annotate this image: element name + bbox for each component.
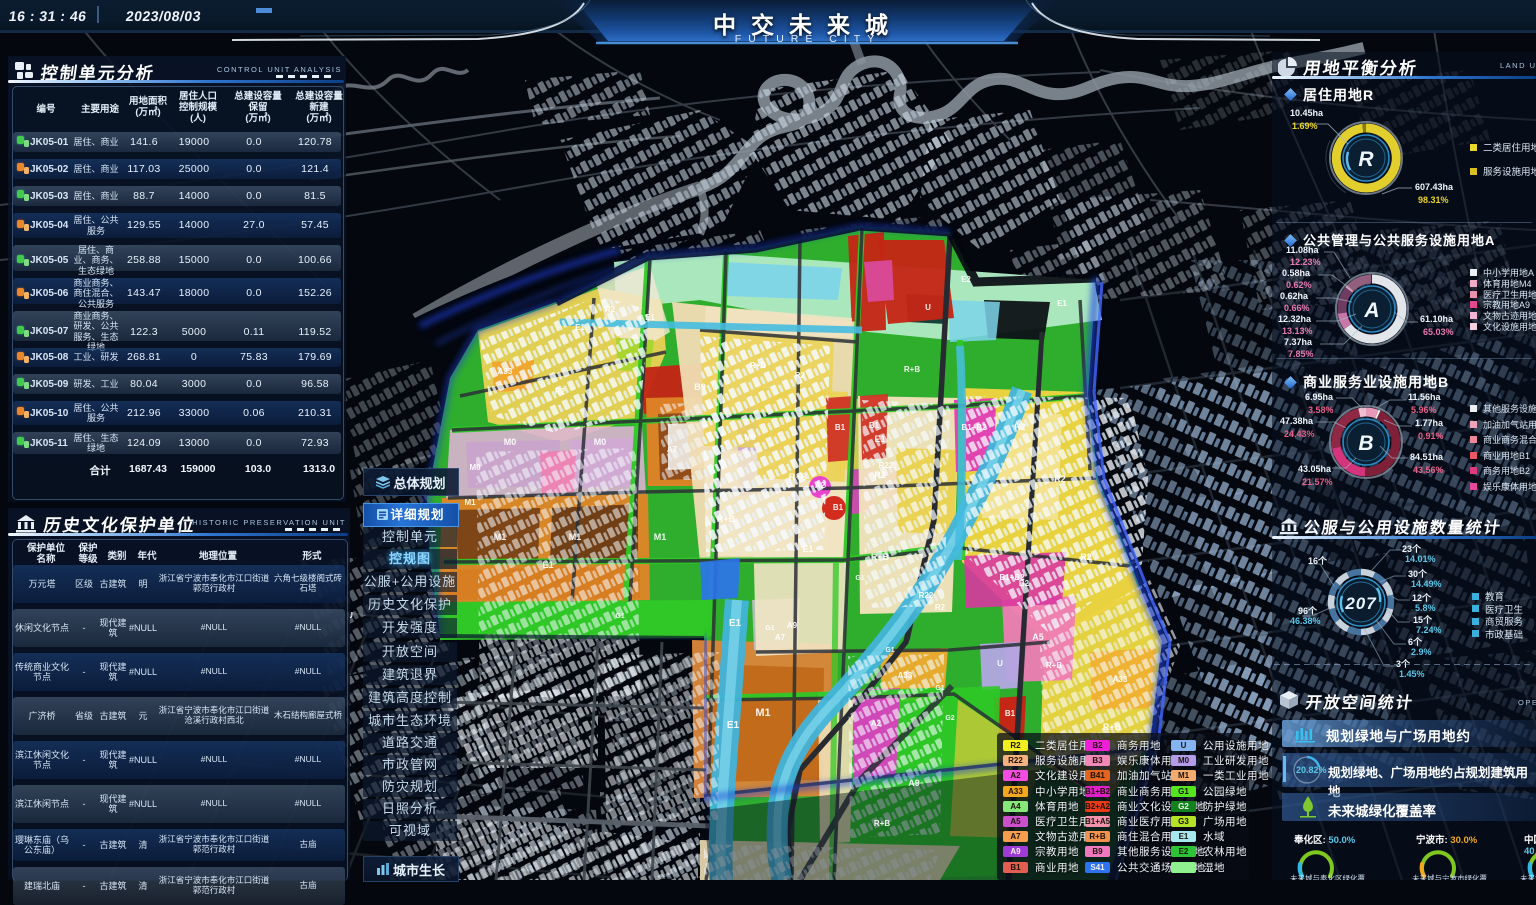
svg-text:M1: M1 — [464, 498, 476, 507]
svg-text:M1: M1 — [569, 532, 582, 542]
svg-text:M1: M1 — [654, 532, 667, 542]
svg-text:G1: G1 — [615, 613, 624, 620]
svg-text:E1: E1 — [729, 618, 742, 629]
svg-text:R+B: R+B — [904, 365, 920, 374]
svg-text:B1+B2: B1+B2 — [961, 423, 987, 432]
svg-text:R2: R2 — [1080, 552, 1092, 562]
svg-text:G2: G2 — [945, 715, 954, 722]
svg-text:E1: E1 — [1057, 299, 1067, 308]
svg-text:R2: R2 — [1054, 474, 1066, 484]
svg-text:A2: A2 — [815, 481, 826, 490]
svg-text:R2: R2 — [795, 371, 806, 380]
svg-text:B1: B1 — [833, 503, 844, 512]
svg-text:R22: R22 — [879, 461, 894, 470]
svg-text:R2: R2 — [605, 305, 616, 314]
svg-text:E2: E2 — [961, 275, 971, 284]
svg-text:R22: R22 — [919, 591, 934, 600]
svg-text:U: U — [997, 659, 1003, 668]
svg-text:A7: A7 — [775, 633, 786, 642]
svg-text:A2: A2 — [871, 719, 882, 728]
svg-text:R2: R2 — [555, 387, 566, 396]
svg-text:R+B: R+B — [717, 514, 736, 524]
svg-text:R+B: R+B — [1103, 722, 1122, 732]
svg-text:B1: B1 — [1005, 709, 1016, 718]
svg-text:A33: A33 — [1113, 675, 1128, 684]
svg-text:G1: G1 — [855, 575, 864, 582]
svg-text:M0: M0 — [504, 437, 517, 447]
svg-text:M1: M1 — [494, 532, 507, 542]
svg-text:M0: M0 — [744, 433, 756, 442]
svg-text:R2: R2 — [935, 603, 946, 612]
svg-text:A5: A5 — [1032, 632, 1044, 642]
svg-text:G1: G1 — [885, 647, 894, 654]
svg-text:R+B: R+B — [1046, 661, 1062, 670]
svg-text:U: U — [925, 303, 931, 312]
svg-text:E1: E1 — [645, 313, 655, 322]
svg-text:A33: A33 — [498, 367, 513, 376]
svg-text:R+B: R+B — [871, 552, 890, 562]
svg-text:B2: B2 — [1019, 579, 1030, 588]
svg-text:E1: E1 — [542, 560, 553, 570]
svg-text:E1: E1 — [727, 720, 740, 731]
svg-text:G1: G1 — [765, 625, 774, 632]
svg-text:A7: A7 — [667, 445, 678, 454]
svg-text:M0: M0 — [469, 463, 481, 472]
svg-text:B1: B1 — [869, 421, 880, 430]
svg-text:E1: E1 — [575, 323, 585, 332]
svg-text:R2: R2 — [874, 470, 886, 480]
svg-text:G1: G1 — [935, 685, 944, 692]
svg-text:R+B: R+B — [874, 819, 890, 828]
svg-text:A33: A33 — [898, 671, 913, 680]
svg-text:A9: A9 — [787, 621, 798, 630]
svg-text:B9: B9 — [694, 382, 706, 392]
svg-text:M1: M1 — [755, 707, 770, 719]
svg-text:M0: M0 — [594, 437, 607, 447]
svg-text:B1: B1 — [835, 423, 846, 432]
svg-text:E1: E1 — [802, 544, 813, 554]
svg-text:R2: R2 — [1014, 422, 1026, 432]
svg-text:R+B: R+B — [789, 472, 808, 482]
svg-text:A9: A9 — [908, 778, 920, 788]
svg-text:E1: E1 — [874, 434, 885, 444]
svg-text:R+B: R+B — [750, 361, 766, 370]
